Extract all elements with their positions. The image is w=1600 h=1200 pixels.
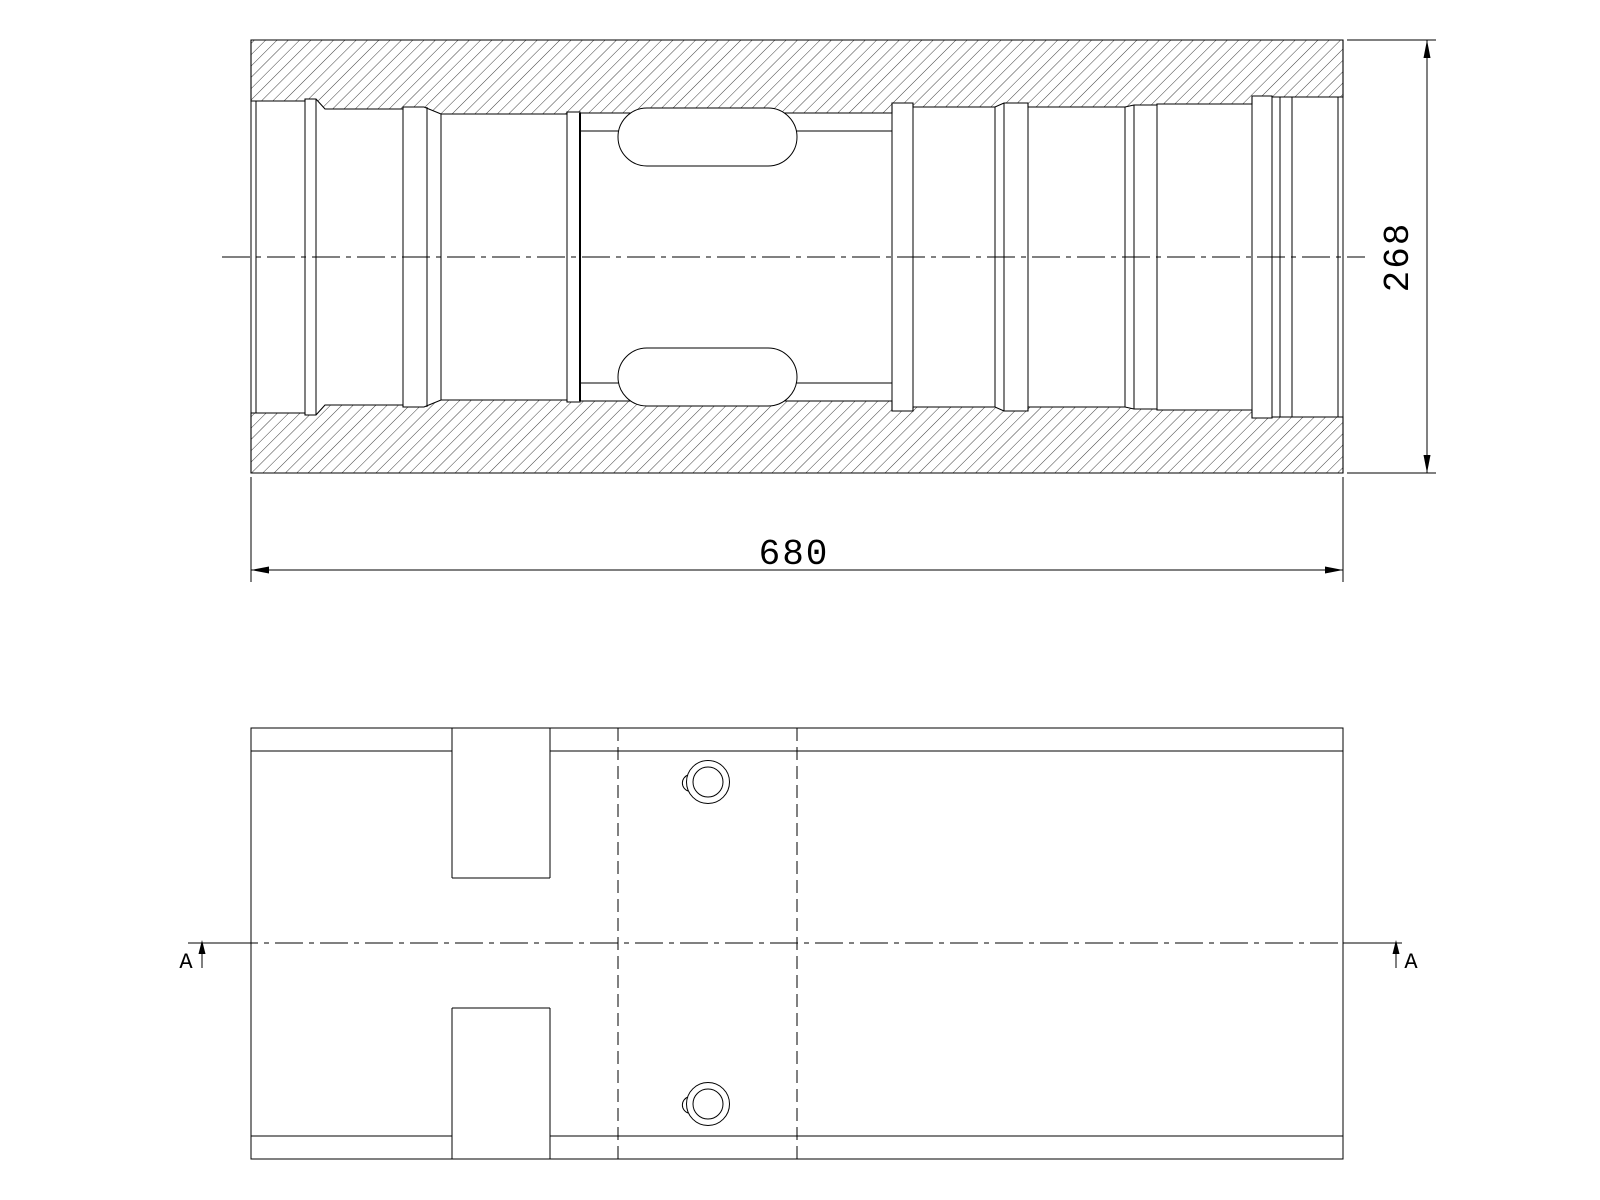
upper-keyway-slot — [618, 108, 797, 166]
plan-view: A A — [179, 728, 1418, 1159]
length-dimension-text: 680 — [759, 534, 830, 575]
section-top-wall-hatch — [251, 40, 1343, 114]
section-label-right: A — [1404, 950, 1418, 975]
engineering-drawing-canvas: 680 268 — [0, 0, 1600, 1200]
drawing-sheet: 680 268 — [0, 0, 1600, 1200]
section-bottom-wall-hatch — [251, 400, 1343, 473]
section-label-left: A — [179, 950, 193, 975]
lower-keyway-slot — [618, 348, 797, 406]
height-dimension-text: 268 — [1378, 222, 1419, 293]
